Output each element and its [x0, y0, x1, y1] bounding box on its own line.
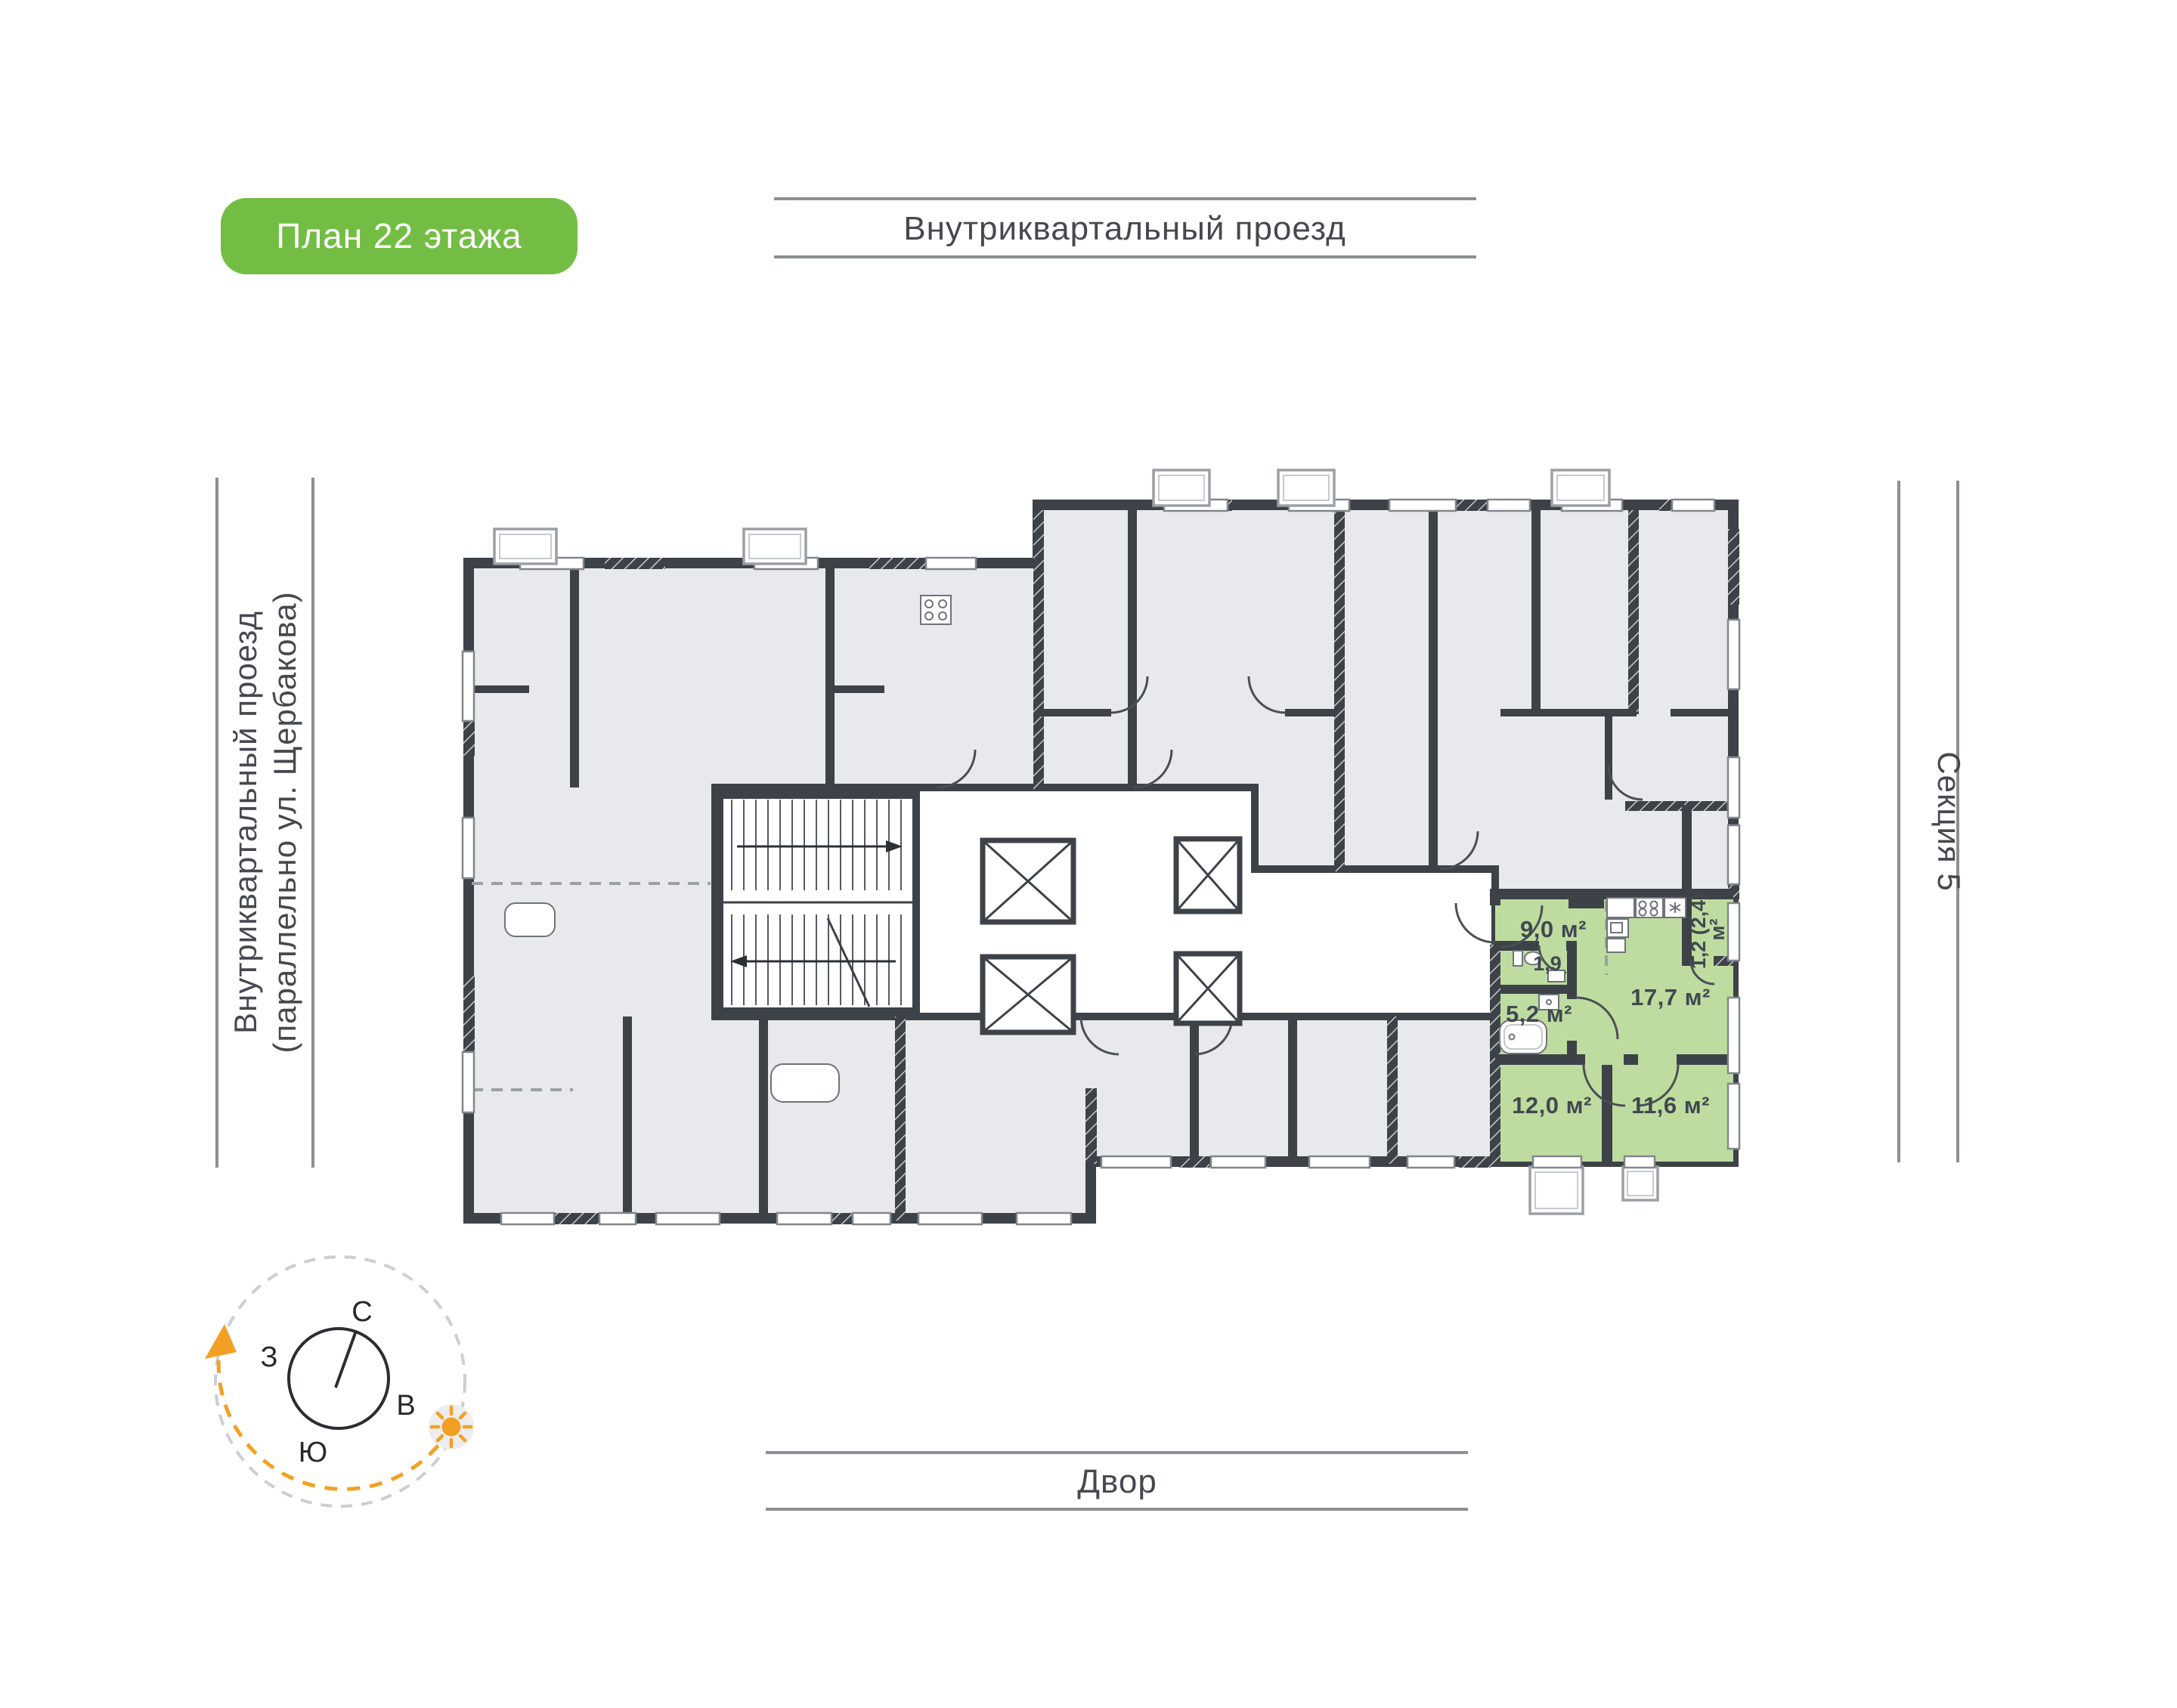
floor-plan-page: План 22 этажа Внутриквартальный проезд В… — [0, 0, 2177, 1708]
yard: Двор — [766, 1453, 1468, 1509]
elevator-shaft-icon — [1176, 954, 1240, 1023]
compass-west-label: З — [261, 1341, 278, 1373]
top-road: Внутриквартальный проезд — [774, 199, 1476, 257]
sun-path-arrow-icon — [205, 1324, 237, 1359]
highlighted-apartment[interactable]: 9,0 м² 1,9 5,2 м² 17,7 м² 12,0 м² 11,6 м… — [1490, 889, 1739, 1168]
compass-east-label: В — [396, 1390, 415, 1422]
elevator-shaft-icon — [983, 840, 1073, 922]
room-area-label-hallway: 9,0 м² — [1520, 916, 1587, 942]
floor-badge: План 22 этажа — [221, 198, 578, 274]
room-area-label-bathroom: 5,2 м² — [1506, 1001, 1572, 1027]
room-area-label-bedroom-1: 12,0 м² — [1512, 1092, 1592, 1119]
sun-icon — [429, 1404, 474, 1450]
yard-label: Двор — [1077, 1463, 1157, 1500]
room-area-label-balcony-line2: м² — [1706, 919, 1729, 941]
section-label: Секция 5 — [1931, 751, 1967, 891]
elevator-shaft-icon — [1176, 839, 1240, 911]
compass: С З В Ю — [205, 1257, 474, 1506]
top-road-label: Внутриквартальный проезд — [903, 210, 1346, 247]
section-strip: Секция 5 — [1899, 481, 1967, 1162]
elevator-shaft-icon — [983, 957, 1073, 1032]
left-road-label-line2: (параллельно ул. Щербакова) — [267, 591, 302, 1053]
building-plan: 9,0 м² 1,9 5,2 м² 17,7 м² 12,0 м² 11,6 м… — [463, 470, 1739, 1224]
left-road: Внутриквартальный проезд (параллельно ул… — [217, 478, 313, 1168]
compass-south-label: Ю — [299, 1437, 327, 1468]
room-area-label-bedroom-2: 11,6 м² — [1631, 1092, 1710, 1119]
toilet-icon — [1513, 951, 1522, 966]
room-area-label-living: 17,7 м² — [1630, 984, 1711, 1010]
stairs-icon — [720, 795, 916, 1011]
floor-badge-label: План 22 этажа — [276, 216, 522, 255]
compass-north-label: С — [351, 1296, 372, 1328]
left-road-label-line1: Внутриквартальный проезд — [228, 611, 263, 1034]
room-area-label-wc: 1,9 — [1533, 952, 1562, 975]
